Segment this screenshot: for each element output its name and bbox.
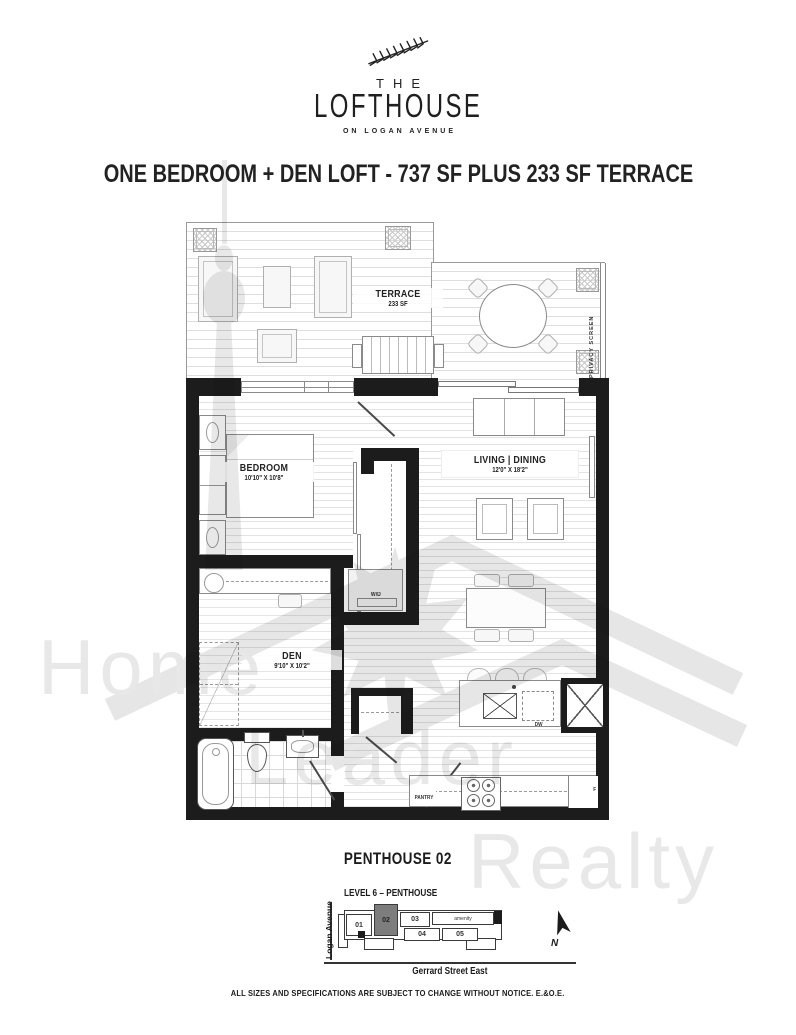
keyplan-unit-02-highlighted: 02 (374, 904, 398, 936)
keyplan-unit-04: 04 (404, 928, 440, 941)
page-title: ONE BEDROOM + DEN LOFT - 737 SF PLUS 233… (0, 160, 796, 189)
keyplan-entrance (358, 931, 365, 938)
logo-name: LOFTHOUSE (0, 90, 796, 124)
planter (193, 228, 217, 252)
armchair (476, 498, 513, 540)
street-label-left: Logan Avenue (324, 895, 336, 965)
fridge: F (568, 776, 598, 808)
privacy-screen-label: PRIVACY SCREEN (589, 278, 595, 378)
dining-chair (474, 629, 500, 642)
logo-branch-icon (0, 36, 796, 69)
wall (331, 612, 419, 625)
wall (596, 378, 609, 820)
nightstand (199, 520, 226, 555)
island-sink (483, 693, 517, 719)
den-builtin-shelf (199, 642, 239, 726)
hall-floor (353, 396, 419, 448)
wall (186, 807, 609, 820)
terrace-label: TERRACE233 SF (353, 288, 443, 308)
logo-tagline: ON LOGAN AVENUE (0, 128, 796, 135)
dining-chair (508, 574, 534, 587)
keyplan-building: 01 02 03 amenity 04 05 (342, 902, 522, 958)
washer-dryer: W/D (348, 569, 403, 611)
building-outline (364, 938, 394, 950)
bbq-side-table (434, 344, 444, 368)
keyplan-unit-03: 03 (400, 912, 430, 927)
floor-plan: TERRACE233 SF PRIVACY SCREEN (186, 222, 609, 820)
wall (351, 688, 359, 734)
den-label: DEN9'10" X 10'2" (242, 650, 342, 670)
sofa (473, 398, 565, 436)
keyplan-level-label: LEVEL 6 – PENTHOUSE (344, 888, 458, 899)
planter (576, 350, 599, 374)
disclaimer: ALL SIZES AND SPECIFICATIONS ARE SUBJECT… (0, 988, 796, 998)
den-desk (199, 568, 331, 594)
terrace-bbq-grill (362, 336, 434, 374)
wall (331, 625, 344, 728)
bedroom-window (241, 381, 354, 393)
nightstand (199, 415, 226, 450)
keyplan: LEVEL 6 – PENTHOUSE Logan Avenue 01 02 0… (318, 886, 590, 986)
privacy-screen-panel (600, 263, 606, 383)
terrace-coffee-table (263, 266, 291, 308)
kitchen-counter: PANTRY F (409, 775, 596, 807)
north-label: N (551, 938, 558, 949)
keyplan-unit-05: 05 (442, 928, 478, 941)
gerrard-street-line (324, 962, 576, 964)
kitchen-island: DW (459, 680, 561, 727)
dining-chair (508, 629, 534, 642)
bathroom-sink (286, 735, 319, 758)
wall (406, 448, 419, 625)
terrace-side-table (257, 329, 297, 363)
planter (385, 226, 411, 250)
keyplan-elevator (494, 911, 502, 924)
wall (361, 448, 374, 474)
sliding-patio-door (438, 380, 579, 394)
street-label-bottom: Gerrard Street East (318, 966, 582, 977)
keyplan-amenity: amenity (432, 912, 494, 925)
closet-sliding-door (353, 462, 357, 534)
bathtub (197, 738, 234, 810)
media-console (589, 436, 595, 498)
wall (401, 688, 413, 734)
entry-closet (359, 696, 401, 734)
toilet-tank (244, 732, 270, 743)
bbq-side-table (352, 344, 362, 368)
unit-name: PENTHOUSE 02 (0, 850, 796, 869)
shaft (561, 678, 609, 733)
dining-table (466, 588, 546, 628)
planter (576, 268, 599, 292)
wall (331, 728, 344, 756)
bedroom-label: BEDROOM10'10" X 10'8" (214, 462, 314, 482)
cooktop (461, 777, 501, 811)
terrace-lounge-chair (314, 256, 352, 318)
armchair (527, 498, 564, 540)
wall (186, 555, 353, 568)
wall (354, 378, 438, 396)
dining-chair (474, 574, 500, 587)
terrace-sofa (198, 256, 238, 322)
terrace-dining-table (479, 284, 547, 348)
living-dining-label: LIVING | DINING12'0" X 18'2" (441, 450, 579, 478)
north-arrow-icon (550, 910, 572, 938)
desk-chair (278, 594, 302, 608)
